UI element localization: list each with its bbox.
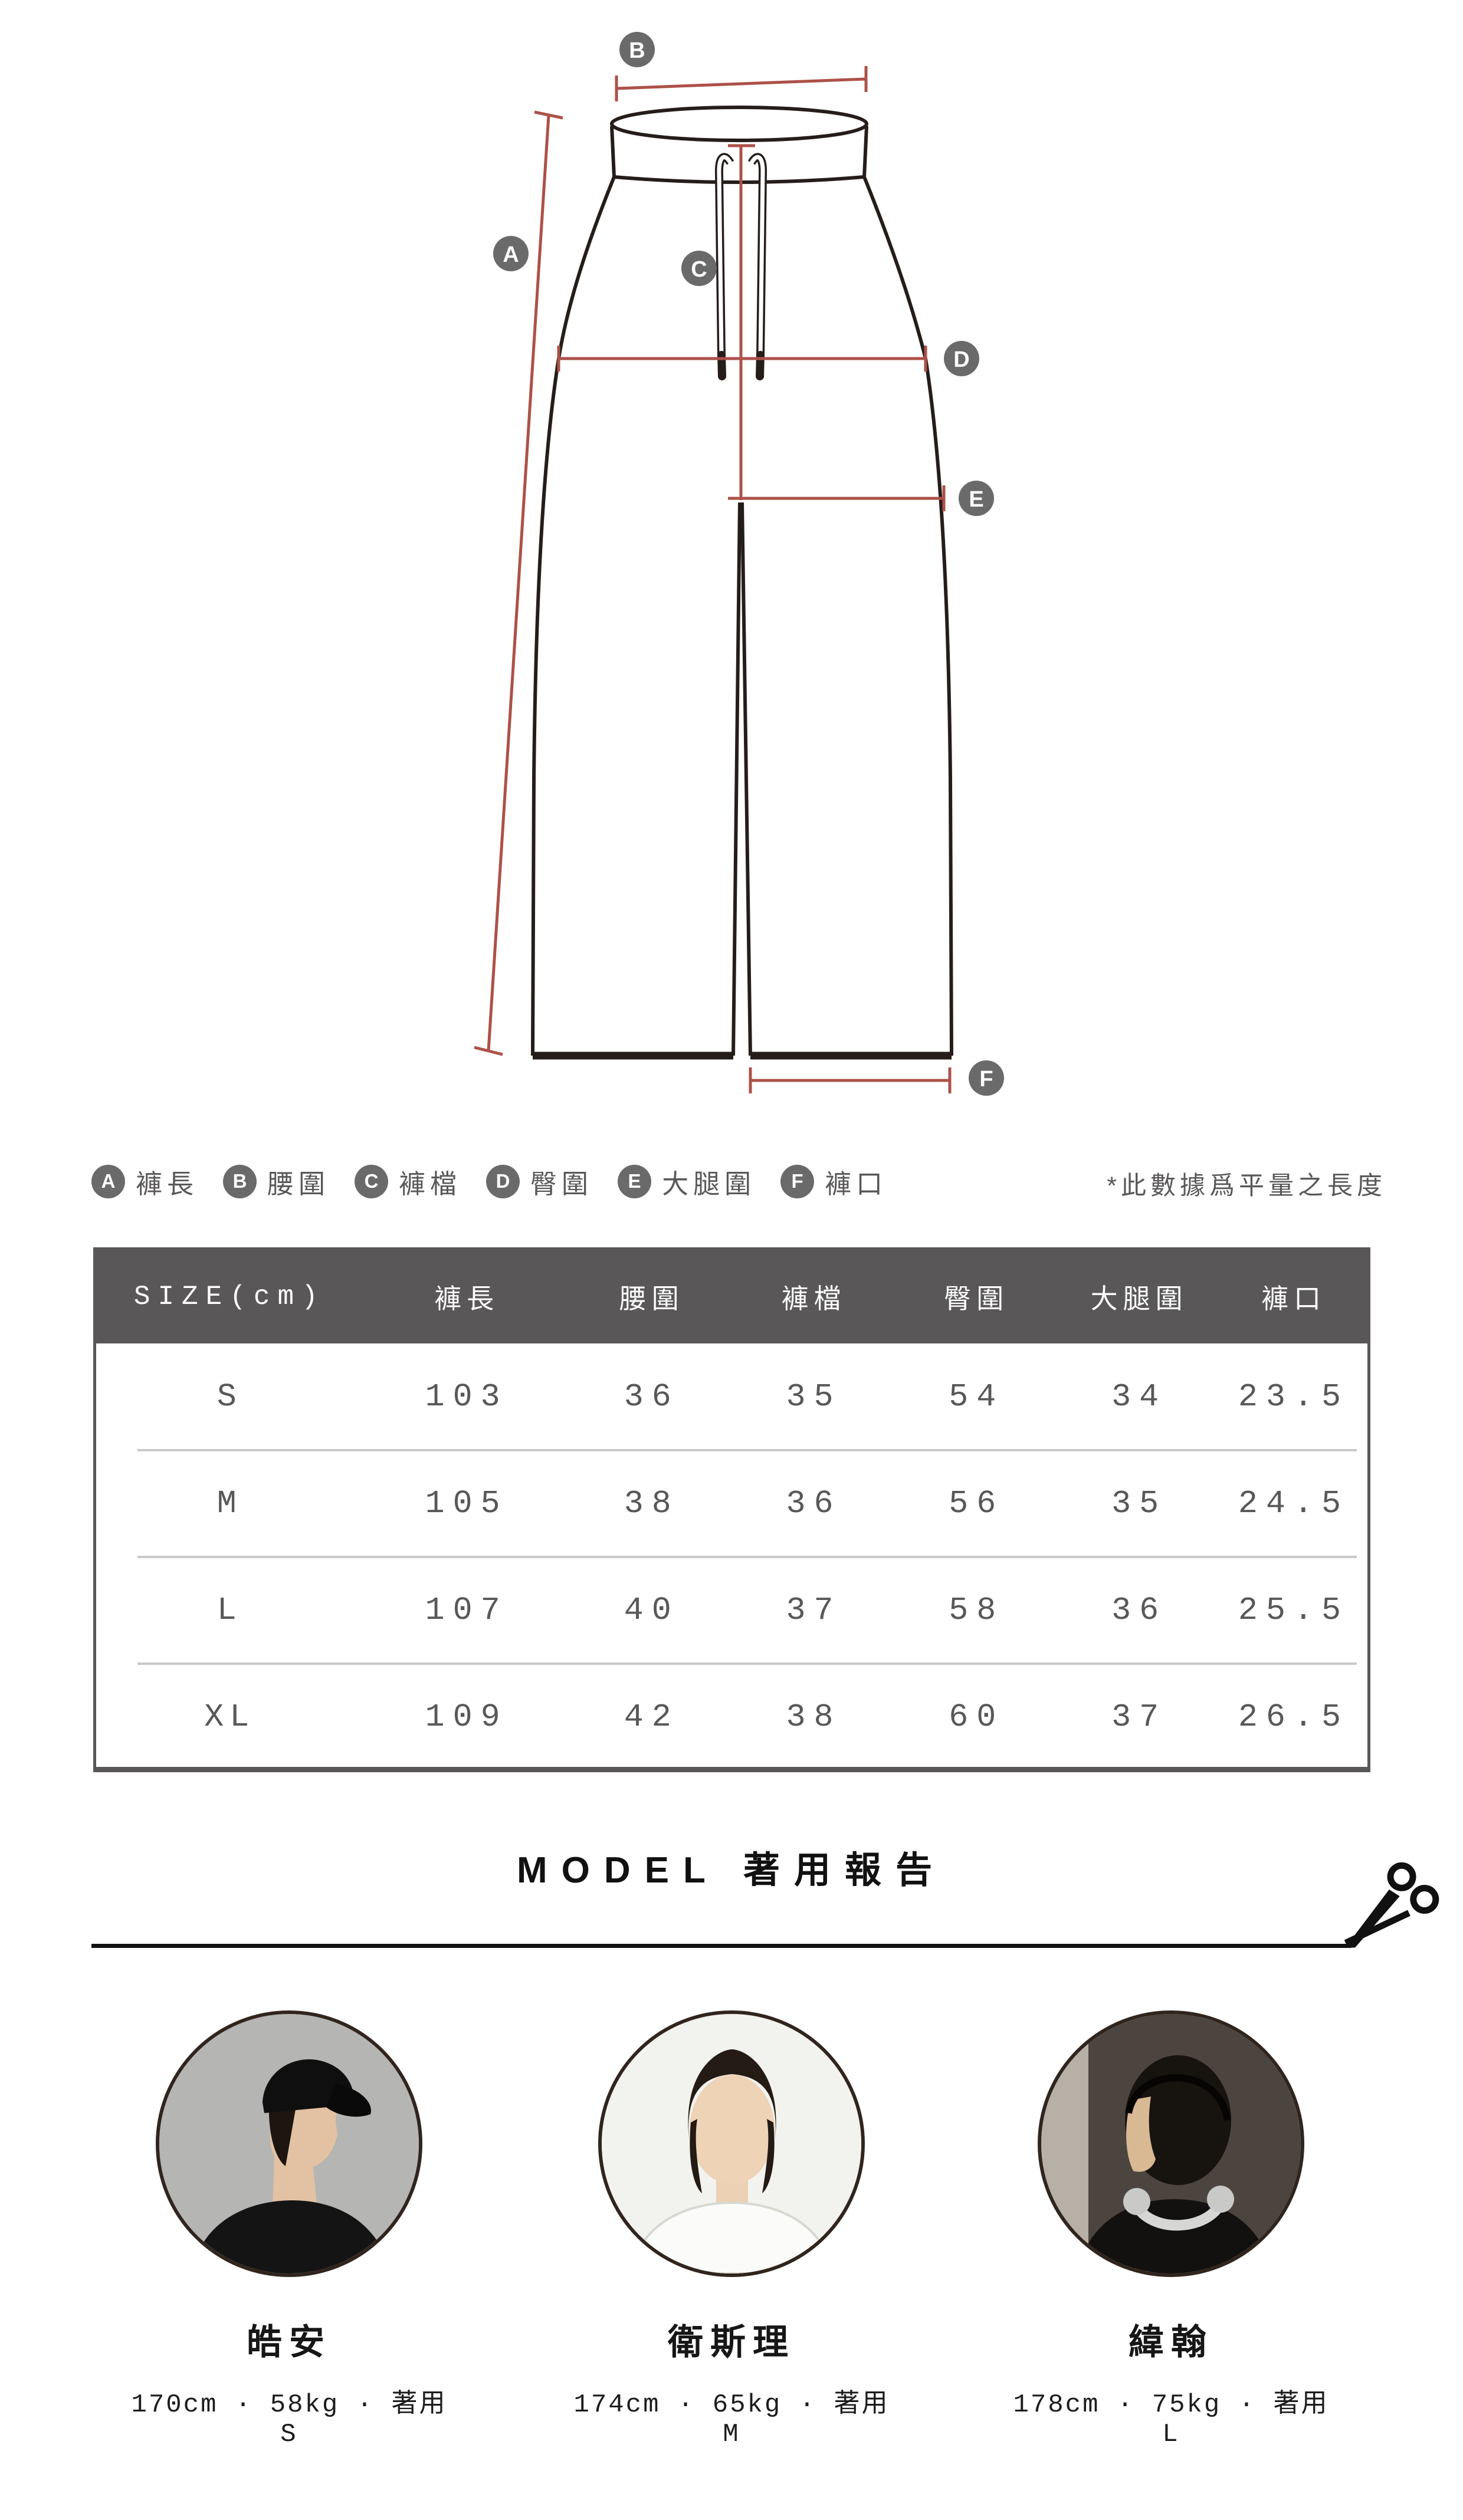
cell-hip: 60 [894,1698,1058,1736]
cell-thigh: 35 [1058,1485,1220,1522]
size-table-header-col: 臀圍 [894,1277,1058,1316]
table-row: L 107 40 37 58 36 25.5 [96,1557,1367,1664]
svg-text:C: C [691,257,707,282]
marker-A: A [493,236,529,271]
legend-letter-badge: C [355,1165,388,1198]
legend-item: D 臀圍 [486,1162,593,1201]
size-table-header-col: 褲長 [363,1277,570,1316]
svg-text:D: D [953,347,969,372]
inseam-right [742,502,750,1056]
cell-waist: 36 [570,1378,733,1415]
cell-thigh: 36 [1058,1592,1220,1629]
size-table-header-col: 大腿圍 [1058,1277,1220,1316]
cell-legopening: 25.5 [1220,1592,1367,1629]
cell-length: 105 [363,1485,570,1522]
size-table-header-col: 褲口 [1220,1277,1367,1316]
legend-item: B 腰圍 [223,1162,330,1201]
marker-C: C [681,251,717,286]
cell-crotch: 36 [733,1485,895,1522]
model-card: 皓安 170cm · 58kg · 著用S [124,2010,454,2449]
cell-legopening: 24.5 [1220,1485,1367,1522]
legend-letter-badge: B [223,1165,257,1198]
legend-label: 褲檔 [399,1162,461,1201]
size-table-header: SIZE(cm) 褲長 腰圍 褲檔 臀圍 大腿圍 褲口 [96,1250,1367,1343]
model-card: 衛斯理 174cm · 65kg · 著用M [566,2010,897,2449]
measurement-note: *此數據爲平量之長度 [1107,1165,1386,1202]
cell-crotch: 37 [733,1592,895,1629]
cell-length: 109 [363,1698,570,1736]
model-name: 衛斯理 [566,2314,897,2365]
size-table-header-col: 腰圍 [570,1277,733,1316]
svg-text:A: A [503,242,519,267]
model-card: 緯翰 178cm · 75kg · 著用L [1006,2010,1336,2449]
cell-legopening: 23.5 [1220,1378,1367,1415]
svg-text:B: B [629,38,645,63]
model-photo [1038,2010,1304,2277]
size-guide-page: A B C D E F A 褲長 [0,0,1463,2520]
legend-letter-badge: A [91,1165,125,1198]
measure-line-C [728,145,755,500]
outseam-left [533,177,614,1056]
svg-text:E: E [969,487,983,512]
cell-size: XL [96,1698,363,1736]
model-name: 皓安 [124,2314,454,2365]
model-photo [156,2010,422,2277]
measure-line-E [742,485,944,511]
cell-thigh: 37 [1058,1698,1220,1736]
marker-D: D [944,341,979,376]
cell-hip: 56 [894,1485,1058,1522]
waistband-side-left [612,126,614,177]
model-name: 緯翰 [1006,2314,1336,2365]
cell-size: L [96,1592,363,1629]
cell-legopening: 26.5 [1220,1698,1367,1736]
table-row: XL 109 42 38 60 37 26.5 [96,1664,1367,1770]
model-report-title: MODEL 著用報告 [0,1840,1463,1893]
legend-item: A 褲長 [91,1162,198,1201]
pants-measurement-diagram: A B C D E F [448,24,1050,1097]
cell-length: 107 [363,1592,570,1629]
cell-hip: 58 [894,1592,1058,1629]
measure-line-F [750,1067,950,1093]
size-table-header-col: 褲檔 [733,1277,895,1316]
marker-B: B [619,32,655,67]
legend-letter-badge: F [780,1165,814,1198]
cut-line [91,1944,1351,1948]
legend-item: E 大腿圍 [618,1162,756,1201]
legend-label: 臀圍 [530,1162,593,1201]
cell-hip: 54 [894,1378,1058,1415]
cell-length: 103 [363,1378,570,1415]
model-stats: 174cm · 65kg · 著用M [566,2381,897,2449]
legend-letter-badge: D [486,1165,520,1198]
measure-line-B [616,66,866,101]
cell-waist: 38 [570,1485,733,1522]
table-row: S 103 36 35 54 34 23.5 [96,1343,1367,1450]
legend-item: C 褲檔 [355,1162,461,1201]
outseam-right [864,177,952,1056]
waistband-side-right [864,126,867,177]
legend-label: 褲長 [136,1162,198,1201]
cell-waist: 42 [570,1698,733,1736]
scissors-icon [1268,1852,1463,1958]
size-table: SIZE(cm) 褲長 腰圍 褲檔 臀圍 大腿圍 褲口 [93,1247,1370,1772]
legend-label: 腰圍 [267,1162,330,1201]
svg-text:F: F [979,1067,993,1092]
legend-label: 褲口 [825,1162,887,1201]
marker-E: E [959,481,994,516]
cell-size: S [96,1378,363,1415]
size-table-body: S 103 36 35 54 34 23.5 M 105 38 36 56 35… [96,1343,1367,1770]
legend-item: F 褲口 [780,1162,887,1201]
cell-crotch: 38 [733,1698,895,1736]
model-stats: 178cm · 75kg · 著用L [1006,2381,1336,2449]
legend-letter-badge: E [618,1165,651,1198]
size-table-header-size: SIZE(cm) [96,1282,363,1312]
measurement-legend: A 褲長 B 腰圍 C 褲檔 D 臀圍 [91,1161,1386,1202]
table-row: M 105 38 36 56 35 24.5 [96,1450,1367,1557]
model-photo [598,2010,865,2277]
model-stats: 170cm · 58kg · 著用S [124,2381,454,2449]
cell-thigh: 34 [1058,1378,1220,1415]
cell-crotch: 35 [733,1378,895,1415]
legend-label: 大腿圍 [662,1162,756,1201]
waistband-top [612,107,867,140]
cell-size: M [96,1485,363,1522]
cell-waist: 40 [570,1592,733,1629]
inseam-left [733,502,740,1056]
waistband-bottom [614,177,864,182]
marker-F: F [969,1060,1004,1096]
